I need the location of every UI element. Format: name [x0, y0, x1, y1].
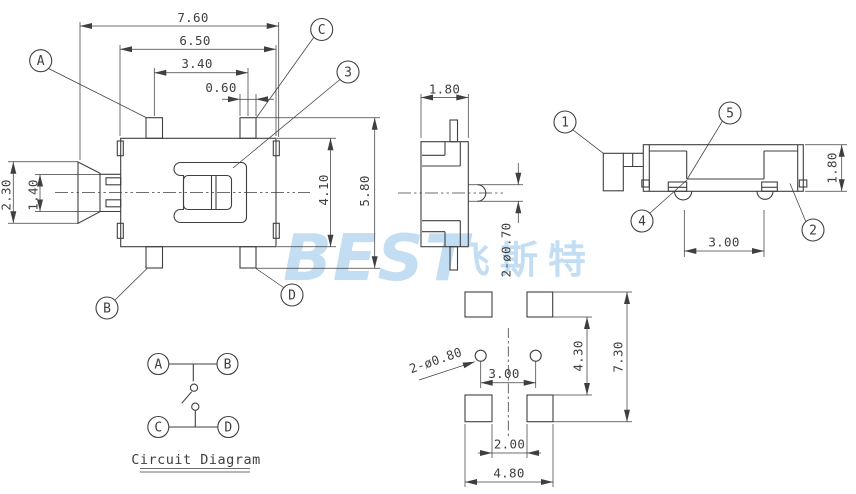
internal-step	[422, 142, 460, 166]
dim-label: 1.40	[25, 179, 40, 210]
dim-label: 4.80	[493, 466, 524, 481]
terminal-c-label: C	[154, 421, 162, 436]
terminal-tab	[146, 247, 163, 268]
terminal-b-label: B	[224, 358, 232, 373]
dim-label: 6.50	[179, 33, 210, 48]
dim-label: 2.30	[0, 179, 14, 210]
balloon-b-label: B	[103, 302, 111, 317]
dim-label: 2-ø0.70	[499, 223, 514, 278]
balloon-1-label: 1	[561, 116, 569, 131]
switch-blade	[182, 392, 192, 404]
dim-label: 3.00	[488, 366, 519, 381]
terminal-a-label: A	[154, 358, 162, 373]
round-pin	[757, 191, 773, 199]
balloon-d-label: D	[288, 289, 296, 304]
footprint-view: 2-ø0.80 3.00 4.30 7.30 2.00 4.80	[407, 292, 632, 487]
dim-label: 1.80	[429, 82, 460, 97]
circuit-diagram-title: Circuit Diagram	[131, 452, 260, 468]
lever-knob	[603, 153, 623, 191]
balloon-c-label: C	[318, 23, 326, 38]
pad	[465, 395, 492, 422]
pin-hole	[530, 350, 541, 361]
dim-label: 0.60	[205, 80, 236, 95]
dim-label: 4.30	[571, 340, 586, 371]
dim-label: 5.80	[357, 175, 372, 206]
lever-slot	[106, 178, 121, 185]
lever-slot	[106, 200, 121, 207]
round-pin	[675, 191, 692, 200]
dim-label: 4.10	[316, 174, 331, 205]
dim-label: 3.40	[181, 56, 212, 71]
leader-line	[256, 269, 284, 288]
brand-watermark: BEST 飞斯特	[283, 222, 596, 296]
technical-drawing: BEST 飞斯特 7.60 6.50	[0, 0, 856, 494]
balloon-a-label: A	[37, 54, 45, 69]
dim-label: 3.00	[708, 235, 739, 250]
leader-line	[573, 130, 604, 154]
end-front-view: 1.80 3.00 1 5 4 2	[554, 102, 847, 257]
leader-line	[49, 69, 147, 118]
dim-label: 7.30	[611, 341, 626, 372]
leader-line	[115, 269, 148, 301]
terminal-tab	[240, 247, 256, 268]
balloon-5-label: 5	[726, 107, 734, 122]
switch-contact	[190, 384, 197, 391]
dim-label: 2-ø0.80	[407, 344, 464, 376]
circuit-diagram: A B C D Circuit Diagram	[131, 354, 260, 473]
terminal	[668, 182, 686, 191]
terminal	[762, 182, 778, 191]
leader-line	[233, 80, 340, 169]
dim-label: 7.60	[177, 10, 208, 25]
terminal-tab	[146, 118, 163, 139]
dim-label: 2.00	[494, 437, 525, 452]
balloon-4-label: 4	[638, 215, 646, 230]
balloon-2-label: 2	[809, 224, 817, 239]
engineering-drawing-page: BEST 飞斯特 7.60 6.50	[0, 0, 856, 494]
balloon-3-label: 3	[344, 66, 352, 81]
switch-contact	[192, 403, 199, 410]
pin-hole	[475, 350, 486, 361]
leader-line	[687, 121, 723, 180]
watermark-cjk-text: 飞斯特	[452, 238, 596, 282]
pad	[527, 395, 553, 422]
dim-label: 1.80	[825, 152, 840, 183]
watermark-latin-text: BEST	[283, 222, 473, 296]
terminal-d-label: D	[224, 421, 232, 436]
body-outline	[643, 145, 803, 192]
terminal-tab	[240, 118, 256, 139]
pad	[527, 292, 553, 317]
top-pin	[450, 120, 458, 142]
